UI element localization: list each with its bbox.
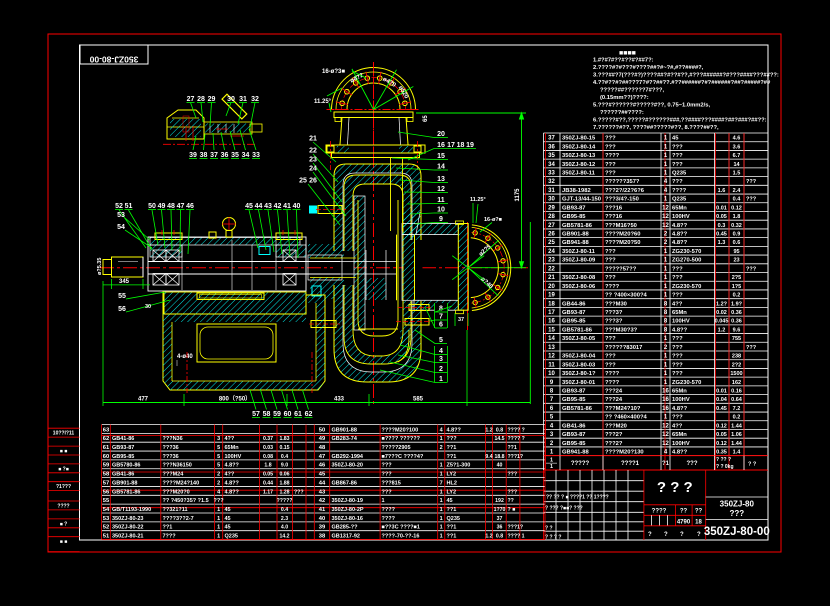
svg-text:0.2: 0.2: [733, 415, 741, 421]
svg-text:1: 1: [664, 266, 668, 272]
svg-text:GB93-87: GB93-87: [562, 432, 586, 438]
svg-text:0.32: 0.32: [731, 223, 742, 229]
svg-text:12: 12: [662, 214, 669, 220]
svg-text:■??3C ????■1: ■??3C ????■1: [382, 525, 420, 531]
svg-text:22: 22: [548, 266, 555, 272]
svg-text:■???? ??????: ■???? ??????: [382, 436, 421, 442]
svg-text:0.08: 0.08: [263, 454, 273, 460]
svg-text:???: ???: [605, 275, 616, 281]
svg-text:???: ???: [672, 162, 683, 168]
svg-text:0.03: 0.03: [263, 445, 273, 451]
svg-text:?? ?400×300?4: ?? ?400×300?4: [605, 293, 648, 299]
svg-text:GB41-86: GB41-86: [562, 423, 586, 429]
svg-text:1: 1: [217, 534, 220, 540]
svg-text:4??: 4??: [672, 301, 683, 307]
svg-text:26: 26: [309, 178, 317, 185]
svg-text:16: 16: [662, 388, 669, 394]
svg-text:45: 45: [225, 525, 231, 531]
svg-text:2: 2: [217, 480, 220, 486]
svg-text:■ ■: ■ ■: [60, 449, 67, 455]
svg-text:65Mn: 65Mn: [225, 445, 240, 451]
svg-text:??1: ??1: [508, 445, 517, 451]
svg-text:350ZJ-80-06: 350ZJ-80-06: [562, 284, 596, 290]
svg-text:4: 4: [440, 427, 444, 433]
svg-text:????M20?130: ????M20?130: [605, 450, 644, 456]
svg-text:12: 12: [662, 441, 669, 447]
svg-text:350ZJ-80-05: 350ZJ-80-05: [562, 336, 596, 342]
svg-text:???: ???: [672, 275, 683, 281]
svg-text:0.045: 0.045: [715, 319, 729, 325]
svg-text:4: 4: [664, 188, 668, 194]
svg-text:1: 1: [664, 162, 668, 168]
svg-text:1: 1: [664, 354, 668, 360]
svg-text:25: 25: [299, 178, 307, 185]
svg-text:3: 3: [439, 356, 443, 363]
svg-text:51: 51: [125, 203, 133, 210]
svg-text:1: 1: [550, 464, 553, 470]
svg-text:4790: 4790: [677, 520, 691, 526]
svg-text:32: 32: [548, 179, 555, 185]
svg-text:8: 8: [664, 319, 668, 325]
svg-text:37: 37: [458, 317, 464, 323]
svg-text:???: ???: [746, 266, 757, 272]
svg-text:???24: ???24: [605, 397, 623, 403]
svg-text:0.8: 0.8: [496, 427, 503, 433]
svg-text:GB95-85: GB95-85: [562, 441, 586, 447]
svg-text:???: ???: [605, 136, 616, 142]
svg-text:GB867-86: GB867-86: [332, 480, 357, 486]
svg-text:HL2: HL2: [447, 480, 457, 486]
svg-text:????M24?140: ????M24?140: [163, 480, 200, 486]
svg-text:14: 14: [548, 336, 555, 342]
svg-text:45: 45: [319, 472, 326, 478]
svg-text:4.8??: 4.8??: [672, 406, 688, 412]
svg-text:? ?? ?: ? ?? ?: [716, 457, 731, 463]
svg-text:36: 36: [548, 144, 555, 150]
svg-text:ZG270-500: ZG270-500: [672, 258, 701, 264]
svg-text:100HV: 100HV: [672, 319, 690, 325]
svg-text:1: 1: [664, 371, 668, 377]
svg-text:1: 1: [440, 489, 443, 495]
svg-text:???: ???: [672, 266, 683, 272]
svg-text:40: 40: [293, 203, 301, 210]
svg-text:???: ???: [382, 472, 393, 478]
svg-text:GJT-13/44-150: GJT-13/44-150: [562, 197, 601, 203]
svg-text:2.????#?#???#????##?#~?#,#??##: 2.????#?#???#????##?#~?#,#??####?,: [593, 65, 704, 71]
svg-text:?? ?? ? ■ ????1 ?? 1????: ?? ?? ? ■ ????1 ?? 1????: [546, 495, 609, 501]
svg-text:0.01: 0.01: [716, 388, 727, 394]
svg-text:16: 16: [662, 406, 669, 412]
svg-text:37: 37: [497, 516, 503, 522]
svg-text:350ZJ-80-08: 350ZJ-80-08: [562, 275, 596, 281]
svg-text:350ZJ-80-23: 350ZJ-80-23: [112, 516, 144, 522]
svg-text:4: 4: [664, 450, 668, 456]
svg-text:350ZJ-80-1?: 350ZJ-80-1?: [562, 371, 596, 377]
svg-text:23: 23: [548, 258, 555, 264]
svg-text:GB5781-86: GB5781-86: [562, 223, 593, 229]
svg-text:5: 5: [550, 415, 554, 421]
svg-text:1.2?: 1.2?: [716, 301, 728, 307]
svg-text:???3?: ???3?: [605, 310, 623, 316]
svg-text:37: 37: [210, 152, 218, 159]
svg-text:27: 27: [548, 223, 555, 229]
svg-text:36: 36: [221, 152, 229, 159]
svg-text:2: 2: [664, 345, 668, 351]
svg-text:55: 55: [103, 498, 110, 504]
svg-text:GB93-87: GB93-87: [562, 310, 586, 316]
svg-text:????3??2-7: ????3??2-7: [163, 516, 194, 522]
svg-text:ZG230-570: ZG230-570: [672, 284, 701, 290]
svg-text:????M20?60: ????M20?60: [605, 232, 640, 238]
svg-text:60: 60: [284, 411, 292, 418]
svg-text:4: 4: [439, 348, 443, 355]
svg-text:ø?40: ø?40: [479, 276, 494, 290]
svg-text:ZG230-570: ZG230-570: [672, 380, 701, 386]
svg-text:61: 61: [294, 411, 302, 418]
svg-text:LY2: LY2: [447, 472, 457, 478]
svg-text:4.8??: 4.8??: [447, 427, 462, 433]
svg-text:350ZJ-80-2P: 350ZJ-80-2P: [332, 507, 364, 513]
svg-text:19: 19: [466, 142, 474, 149]
svg-text:58: 58: [263, 411, 271, 418]
svg-text:4??: 4??: [225, 436, 235, 442]
svg-text:755: 755: [732, 336, 741, 342]
svg-text:3: 3: [550, 432, 554, 438]
svg-text:0.45: 0.45: [716, 232, 727, 238]
svg-text:3.???##?7(???#?)????##?#??#??,: 3.???##?7(???#?)????##?#??#??,#???######…: [593, 73, 779, 79]
svg-text:???: ???: [672, 362, 683, 368]
svg-text:??: ??: [508, 498, 514, 504]
svg-text:???: ???: [508, 472, 518, 478]
svg-text:59: 59: [103, 463, 110, 469]
svg-text:???: ???: [672, 153, 683, 159]
svg-text:1: 1: [550, 458, 553, 464]
svg-text:■ ?■: ■ ?■: [58, 466, 68, 472]
svg-text:4.8??: 4.8??: [672, 240, 688, 246]
svg-text:5.???#??????#?????#??, 0.75~1.: 5.???#??????#?????#??, 0.75~1.0mm2/s,: [593, 103, 710, 109]
svg-text:12: 12: [548, 354, 555, 360]
svg-text:58: 58: [103, 472, 110, 478]
svg-text:???M24: ???M24: [163, 472, 185, 478]
svg-text:????: ????: [652, 509, 667, 515]
svg-text:1: 1: [664, 284, 668, 290]
svg-text:0.4: 0.4: [281, 507, 288, 513]
svg-text:???: ???: [746, 345, 757, 351]
svg-text:??1: ??1: [163, 525, 173, 531]
svg-text:35: 35: [231, 152, 239, 159]
svg-text:???2?: ???2?: [605, 441, 623, 447]
svg-text:4.8??: 4.8??: [672, 327, 688, 333]
svg-text:??: ??: [680, 509, 688, 515]
svg-text:65: 65: [423, 115, 429, 122]
svg-text:???: ???: [508, 489, 518, 495]
svg-text:4.6: 4.6: [733, 136, 741, 142]
svg-text:GB95-85: GB95-85: [562, 319, 586, 325]
svg-text:5: 5: [217, 445, 220, 451]
svg-text:■ ■: ■ ■: [60, 539, 67, 545]
svg-text:39: 39: [189, 152, 197, 159]
svg-text:GB93-87: GB93-87: [112, 445, 134, 451]
svg-text:350ZJ-80-15: 350ZJ-80-15: [562, 136, 596, 142]
svg-text:???1?: ???1?: [508, 525, 524, 531]
svg-text:????: ????: [605, 371, 620, 377]
svg-text:22: 22: [309, 148, 317, 155]
svg-text:???: ???: [672, 371, 683, 377]
svg-text:???: ???: [746, 197, 757, 203]
svg-text:9.4: 9.4: [485, 454, 492, 460]
svg-text:100HV: 100HV: [225, 454, 242, 460]
svg-text:???1?: ???1?: [508, 454, 524, 460]
svg-text:57: 57: [252, 411, 260, 418]
svg-text:1.6: 1.6: [718, 188, 726, 194]
svg-text:Q235: Q235: [672, 197, 687, 203]
svg-text:45: 45: [245, 203, 253, 210]
svg-text:6: 6: [439, 322, 443, 329]
svg-text:5: 5: [439, 337, 443, 344]
svg-text:?: ?: [680, 532, 684, 538]
svg-text:GB292-1994: GB292-1994: [332, 454, 364, 460]
svg-text:???: ???: [687, 461, 698, 467]
svg-text:46: 46: [319, 463, 326, 469]
svg-text:19: 19: [548, 293, 555, 299]
svg-text:52: 52: [103, 525, 109, 531]
svg-text:??1: ??1: [447, 507, 457, 513]
svg-text:33: 33: [548, 170, 555, 176]
svg-text:Z5?1-300: Z5?1-300: [447, 463, 471, 469]
svg-text:GB285-??: GB285-??: [332, 525, 359, 531]
svg-text:192: 192: [495, 498, 504, 504]
svg-text:2: 2: [439, 366, 443, 373]
svg-text:2: 2: [664, 240, 668, 246]
svg-text:2: 2: [217, 472, 220, 478]
svg-text:585: 585: [413, 397, 424, 403]
svg-text:??1: ??1: [447, 454, 457, 460]
svg-text:????: ????: [57, 504, 69, 510]
svg-text:GB93-87: GB93-87: [562, 388, 586, 394]
svg-text:100HV: 100HV: [672, 441, 690, 447]
svg-text:8: 8: [550, 388, 554, 394]
svg-text:62: 62: [103, 436, 109, 442]
svg-text:???: ???: [447, 436, 458, 442]
svg-text:2.4: 2.4: [733, 188, 742, 194]
svg-text:53: 53: [117, 212, 125, 219]
svg-text:?1: ?1: [662, 461, 670, 467]
svg-text:4??: 4??: [225, 472, 235, 478]
svg-text:24: 24: [548, 249, 555, 255]
svg-text:???: ???: [729, 509, 744, 518]
svg-text:60: 60: [103, 454, 109, 460]
svg-text:???: ???: [672, 354, 683, 360]
svg-text:14.5: 14.5: [494, 436, 504, 442]
svg-text:1: 1: [664, 170, 668, 176]
svg-text:21: 21: [548, 275, 555, 281]
svg-text:18: 18: [695, 520, 702, 526]
svg-text:???36: ???36: [163, 445, 179, 451]
svg-text:33: 33: [252, 152, 260, 159]
svg-text:????: ????: [672, 188, 687, 194]
svg-text:42: 42: [319, 498, 325, 504]
svg-text:4.8??: 4.8??: [225, 480, 240, 486]
svg-text:65Mn: 65Mn: [672, 432, 687, 438]
svg-text:???24: ???24: [605, 388, 623, 394]
svg-text:42: 42: [274, 203, 282, 210]
svg-text:6.?????#??,?????#??????###,??#: 6.?????#??,?????#??????###,??####???####…: [593, 118, 767, 124]
svg-text:1: 1: [664, 293, 668, 299]
svg-text:43: 43: [319, 489, 326, 495]
svg-text:17: 17: [447, 142, 455, 149]
svg-text:Q235: Q235: [672, 170, 687, 176]
svg-text:■ ?: ■ ?: [60, 521, 67, 527]
svg-text:9: 9: [550, 380, 554, 386]
svg-text:10??I?11: 10??I?11: [53, 431, 75, 437]
svg-text:???: ???: [605, 249, 616, 255]
svg-text:350ZJ-80-12: 350ZJ-80-12: [562, 162, 595, 168]
svg-text:GB5781-86: GB5781-86: [562, 327, 593, 333]
svg-text:30: 30: [227, 96, 235, 103]
svg-text:350ZJ-80: 350ZJ-80: [720, 500, 755, 509]
svg-text:1: 1: [440, 525, 443, 531]
svg-text:23: 23: [733, 258, 739, 264]
svg-text:1: 1: [440, 463, 443, 469]
svg-text:13: 13: [548, 345, 555, 351]
svg-text:0.01: 0.01: [716, 205, 727, 211]
svg-text:65Mn: 65Mn: [672, 205, 687, 211]
svg-text:54: 54: [117, 224, 125, 231]
svg-text:4.8??: 4.8??: [672, 450, 688, 456]
svg-text:46: 46: [186, 203, 194, 210]
svg-text:1: 1: [664, 362, 668, 368]
svg-text:???36: ???36: [163, 454, 179, 460]
svg-text:50: 50: [148, 203, 156, 210]
svg-text:29: 29: [548, 205, 555, 211]
svg-text:1.88: 1.88: [279, 480, 289, 486]
svg-text:2: 2: [664, 232, 668, 238]
svg-text:????: ????: [605, 284, 620, 290]
svg-text:1: 1: [664, 136, 668, 142]
svg-text:34: 34: [242, 152, 250, 159]
svg-text:0.12: 0.12: [731, 205, 742, 211]
svg-text:47: 47: [177, 203, 185, 210]
svg-text:2: 2: [440, 445, 443, 451]
svg-text:800（?50）: 800（?50）: [219, 395, 251, 403]
svg-text:350ZJ-80-11: 350ZJ-80-11: [562, 249, 596, 255]
svg-text:1.3: 1.3: [718, 240, 726, 246]
svg-text:41: 41: [283, 203, 291, 210]
svg-text:6: 6: [550, 406, 554, 412]
svg-text:4.??#??#?##???7?#??##??.#??###: 4.??#??#?##???7?#??##??.#??######?#?####…: [593, 80, 771, 86]
svg-text:0.05: 0.05: [716, 432, 727, 438]
svg-text:4.8??: 4.8??: [225, 463, 240, 469]
svg-text:12: 12: [437, 186, 445, 193]
svg-text:18.8: 18.8: [494, 454, 504, 460]
svg-text:0.4: 0.4: [733, 197, 742, 203]
svg-text:350ZJ-80-00: 350ZJ-80-00: [89, 55, 138, 65]
svg-text:0.05: 0.05: [263, 472, 273, 478]
svg-text:GB901-88: GB901-88: [112, 480, 137, 486]
svg-text:63: 63: [103, 427, 110, 433]
svg-text:45: 45: [447, 498, 453, 504]
svg-text:GB5780-86: GB5780-86: [112, 463, 140, 469]
svg-text:8: 8: [664, 301, 668, 307]
svg-text:??1: ??1: [447, 525, 457, 531]
svg-text:?????##??????7#???,: ?????##??????7#???,: [600, 88, 664, 94]
svg-text:59: 59: [273, 411, 281, 418]
svg-text:1: 1: [664, 153, 668, 159]
svg-text:14: 14: [733, 162, 740, 168]
svg-text:???16: ???16: [605, 205, 623, 211]
svg-text:???M30?3?: ???M30?3?: [605, 327, 638, 333]
svg-text:1?70: 1?70: [494, 507, 506, 513]
svg-text:0.02: 0.02: [716, 310, 727, 316]
svg-text:1.5: 1.5: [733, 170, 741, 176]
svg-text:■7???C ????4?: ■7???C ????4?: [382, 454, 424, 460]
svg-text:24: 24: [309, 166, 317, 173]
svg-text:49: 49: [319, 436, 326, 442]
svg-text:? ??? ?■■? ???: ? ??? ?■■? ???: [545, 506, 583, 512]
svg-text:21: 21: [309, 136, 317, 143]
svg-text:7: 7: [440, 480, 443, 486]
svg-text:0.4: 0.4: [281, 454, 288, 460]
svg-text:238: 238: [732, 354, 741, 360]
svg-text:8: 8: [664, 310, 668, 316]
svg-text:350ZJ-80-00: 350ZJ-80-00: [704, 526, 770, 538]
svg-text:350ZJ-80-13: 350ZJ-80-13: [562, 153, 596, 159]
svg-text:1: 1: [382, 498, 385, 504]
svg-text:38: 38: [319, 534, 326, 540]
svg-text:???3?: ???3?: [605, 319, 623, 325]
svg-text:???: ???: [672, 179, 683, 185]
svg-text:?? ?460×400?4: ?? ?460×400?4: [605, 415, 648, 421]
svg-text:?? ?450?35? ?1.5: ?? ?450?35? ?1.5: [163, 498, 209, 504]
svg-text:35: 35: [548, 153, 555, 159]
svg-text:?1???: ?1???: [56, 484, 71, 490]
svg-text:???M20: ???M20: [605, 423, 627, 429]
svg-text:???: ???: [672, 415, 683, 421]
svg-text:???M16?50: ???M16?50: [605, 223, 637, 229]
svg-text:20: 20: [548, 284, 555, 290]
svg-text:345: 345: [119, 279, 130, 285]
svg-text:? ?: ? ?: [748, 462, 757, 468]
svg-text:47: 47: [319, 454, 325, 460]
svg-text:9: 9: [439, 216, 443, 223]
svg-text:? ■: ? ■: [508, 507, 516, 513]
svg-text:??????357?: ??????357?: [605, 179, 640, 185]
svg-text:???? ?: ???? ?: [508, 436, 525, 442]
svg-text:????-70-??-16: ????-70-??-16: [382, 534, 420, 540]
svg-text:???: ???: [382, 463, 393, 469]
svg-text:1: 1: [664, 415, 668, 421]
svg-text:12: 12: [662, 205, 669, 211]
svg-text:1: 1: [440, 516, 443, 522]
svg-text:0.8: 0.8: [496, 534, 503, 540]
svg-text:8: 8: [664, 327, 668, 333]
svg-text:0.3: 0.3: [718, 223, 726, 229]
svg-text:GB41-86: GB41-86: [112, 436, 134, 442]
svg-text:??1: ??1: [447, 445, 457, 451]
svg-text:7.2: 7.2: [733, 406, 741, 412]
svg-text:GB95-85: GB95-85: [562, 214, 586, 220]
svg-text:1: 1: [550, 450, 554, 456]
svg-text:1.9?: 1.9?: [731, 301, 743, 307]
svg-text:???M30: ???M30: [605, 301, 627, 307]
svg-text:? ? ?: ? ? ?: [657, 479, 693, 496]
svg-text:48: 48: [167, 203, 175, 210]
svg-text:1.4: 1.4: [733, 450, 742, 456]
svg-text:Q235: Q235: [225, 534, 238, 540]
svg-text:GB5781-86: GB5781-86: [112, 489, 140, 495]
svg-text:???: ???: [605, 258, 616, 264]
svg-text:30: 30: [145, 304, 151, 310]
